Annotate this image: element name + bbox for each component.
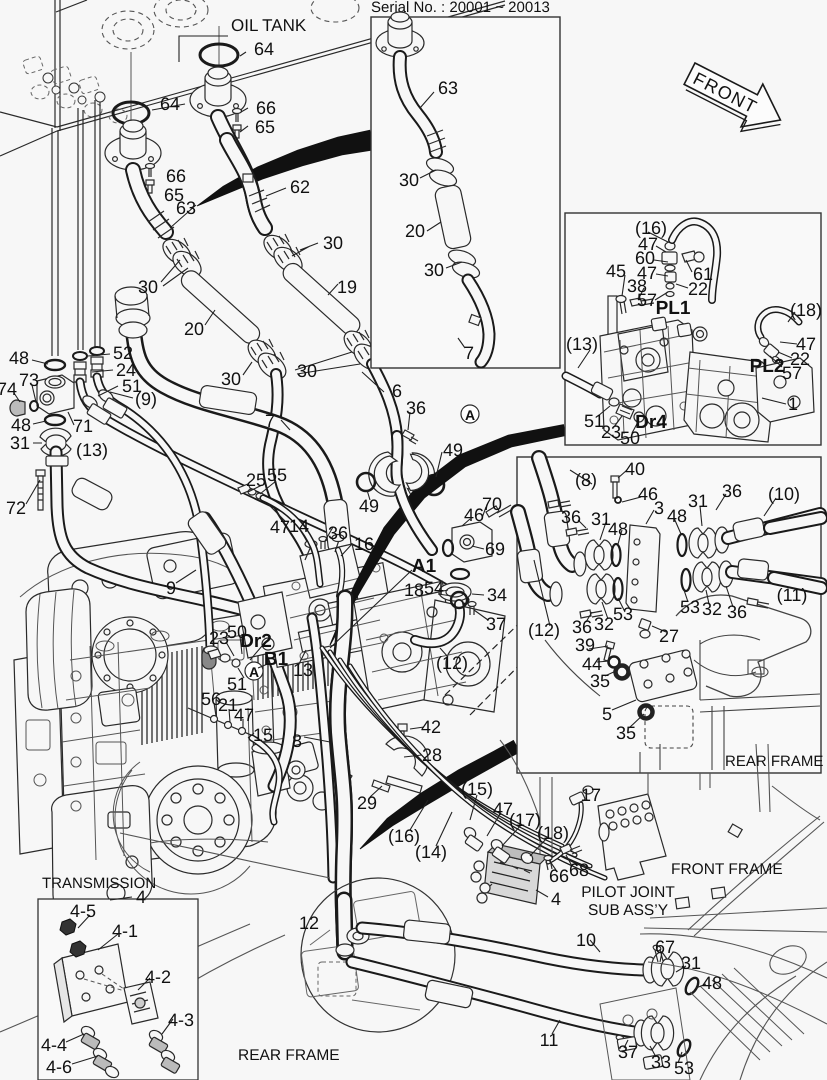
svg-text:42: 42 bbox=[421, 717, 441, 737]
svg-text:A: A bbox=[465, 407, 475, 423]
svg-text:6: 6 bbox=[392, 381, 402, 401]
svg-text:30: 30 bbox=[138, 277, 158, 297]
svg-text:57: 57 bbox=[637, 290, 657, 310]
svg-text:57: 57 bbox=[782, 363, 802, 383]
svg-text:66: 66 bbox=[166, 166, 186, 186]
svg-text:30: 30 bbox=[399, 170, 419, 190]
svg-text:OIL TANK: OIL TANK bbox=[231, 16, 307, 35]
svg-text:68: 68 bbox=[569, 860, 589, 880]
svg-text:4-1: 4-1 bbox=[112, 921, 138, 941]
svg-text:32: 32 bbox=[594, 614, 614, 634]
svg-text:48: 48 bbox=[9, 348, 29, 368]
svg-text:4-3: 4-3 bbox=[168, 1010, 194, 1030]
svg-text:48: 48 bbox=[667, 506, 687, 526]
svg-text:35: 35 bbox=[590, 671, 610, 691]
svg-text:53: 53 bbox=[613, 604, 633, 624]
svg-text:64: 64 bbox=[254, 39, 274, 59]
svg-text:53: 53 bbox=[674, 1058, 694, 1078]
svg-text:63: 63 bbox=[438, 78, 458, 98]
svg-text:14: 14 bbox=[289, 516, 309, 536]
svg-text:(18): (18) bbox=[790, 300, 822, 320]
svg-text:A1: A1 bbox=[412, 556, 437, 577]
svg-text:3: 3 bbox=[654, 498, 664, 518]
svg-text:18: 18 bbox=[404, 580, 424, 600]
svg-text:22: 22 bbox=[688, 279, 708, 299]
svg-text:67: 67 bbox=[655, 937, 675, 957]
svg-text:30: 30 bbox=[297, 361, 317, 381]
svg-text:70: 70 bbox=[482, 494, 502, 514]
svg-text:29: 29 bbox=[357, 793, 377, 813]
svg-text:(14): (14) bbox=[415, 842, 447, 862]
svg-text:27: 27 bbox=[659, 626, 679, 646]
svg-text:PILOT JOINT: PILOT JOINT bbox=[581, 884, 675, 901]
svg-text:(9): (9) bbox=[135, 389, 157, 409]
svg-text:(8): (8) bbox=[575, 470, 597, 490]
svg-text:30: 30 bbox=[221, 369, 241, 389]
svg-text:48: 48 bbox=[11, 415, 31, 435]
svg-text:37: 37 bbox=[618, 1042, 638, 1062]
svg-text:66: 66 bbox=[256, 98, 276, 118]
svg-text:55: 55 bbox=[267, 465, 287, 485]
svg-text:72: 72 bbox=[6, 498, 26, 518]
svg-text:33: 33 bbox=[651, 1052, 671, 1072]
svg-text:36: 36 bbox=[328, 523, 348, 543]
svg-text:49: 49 bbox=[443, 440, 463, 460]
svg-text:48: 48 bbox=[608, 519, 628, 539]
svg-text:4-4: 4-4 bbox=[41, 1035, 67, 1055]
svg-text:31: 31 bbox=[688, 491, 708, 511]
svg-text:FRONT FRAME: FRONT FRAME bbox=[671, 861, 783, 878]
svg-text:30: 30 bbox=[323, 233, 343, 253]
svg-text:11: 11 bbox=[540, 1030, 559, 1050]
svg-text:23: 23 bbox=[601, 422, 621, 442]
svg-text:(10): (10) bbox=[768, 484, 800, 504]
svg-text:47: 47 bbox=[234, 705, 254, 725]
svg-text:30: 30 bbox=[424, 260, 444, 280]
svg-text:39: 39 bbox=[575, 635, 595, 655]
svg-text:62: 62 bbox=[290, 177, 310, 197]
svg-text:64: 64 bbox=[160, 94, 180, 114]
svg-text:71: 71 bbox=[73, 416, 93, 436]
svg-text:47: 47 bbox=[270, 517, 290, 537]
svg-text:69: 69 bbox=[485, 539, 505, 559]
svg-text:65: 65 bbox=[255, 117, 275, 137]
svg-text:31: 31 bbox=[10, 433, 30, 453]
svg-text:37: 37 bbox=[486, 614, 506, 634]
svg-text:20: 20 bbox=[184, 319, 204, 339]
svg-text:REAR FRAME: REAR FRAME bbox=[725, 753, 823, 770]
svg-text:48: 48 bbox=[702, 973, 722, 993]
svg-text:63: 63 bbox=[176, 198, 196, 218]
svg-text:36: 36 bbox=[722, 481, 742, 501]
svg-text:4-5: 4-5 bbox=[70, 901, 96, 921]
svg-text:51: 51 bbox=[227, 674, 247, 694]
svg-text:17: 17 bbox=[581, 785, 601, 805]
svg-text:40: 40 bbox=[625, 459, 645, 479]
svg-text:36: 36 bbox=[727, 602, 747, 622]
svg-text:(13): (13) bbox=[76, 440, 108, 460]
svg-text:8: 8 bbox=[292, 731, 302, 751]
svg-text:13: 13 bbox=[293, 660, 313, 680]
svg-text:4: 4 bbox=[551, 889, 561, 909]
svg-text:34: 34 bbox=[487, 585, 507, 605]
svg-text:36: 36 bbox=[406, 398, 426, 418]
svg-text:4-6: 4-6 bbox=[46, 1057, 72, 1077]
svg-text:25: 25 bbox=[246, 470, 266, 490]
svg-text:(13): (13) bbox=[566, 334, 598, 354]
svg-text:4: 4 bbox=[136, 887, 146, 907]
svg-text:12: 12 bbox=[299, 913, 319, 933]
svg-text:19: 19 bbox=[337, 277, 357, 297]
svg-text:66: 66 bbox=[549, 866, 569, 886]
svg-text:SUB ASS’Y: SUB ASS’Y bbox=[588, 902, 668, 919]
svg-text:REAR FRAME: REAR FRAME bbox=[238, 1047, 340, 1064]
svg-text:73: 73 bbox=[19, 370, 39, 390]
svg-text:20: 20 bbox=[405, 221, 425, 241]
svg-text:54: 54 bbox=[424, 578, 444, 598]
svg-text:53: 53 bbox=[680, 597, 700, 617]
svg-text:16: 16 bbox=[354, 534, 374, 554]
svg-text:5: 5 bbox=[602, 704, 612, 724]
svg-text:7: 7 bbox=[464, 343, 474, 363]
svg-text:A: A bbox=[249, 664, 259, 680]
svg-text:49: 49 bbox=[359, 496, 379, 516]
svg-text:Dr4: Dr4 bbox=[635, 412, 667, 433]
svg-text:PL1: PL1 bbox=[656, 298, 691, 319]
svg-text:7: 7 bbox=[265, 411, 275, 431]
svg-text:36: 36 bbox=[572, 617, 592, 637]
svg-text:36: 36 bbox=[561, 507, 581, 527]
svg-text:45: 45 bbox=[606, 261, 626, 281]
svg-text:31: 31 bbox=[681, 953, 701, 973]
svg-text:46: 46 bbox=[464, 505, 484, 525]
svg-text:PL2: PL2 bbox=[750, 356, 785, 377]
svg-text:9: 9 bbox=[166, 578, 176, 598]
svg-text:10: 10 bbox=[576, 930, 596, 950]
svg-text:(15): (15) bbox=[461, 779, 493, 799]
svg-text:15: 15 bbox=[253, 725, 273, 745]
svg-text:1: 1 bbox=[788, 394, 798, 414]
svg-text:74: 74 bbox=[0, 379, 17, 399]
svg-text:B1: B1 bbox=[264, 649, 289, 670]
svg-text:32: 32 bbox=[702, 599, 722, 619]
svg-text:(12): (12) bbox=[436, 653, 468, 673]
svg-text:28: 28 bbox=[422, 745, 442, 765]
svg-text:4-2: 4-2 bbox=[145, 967, 171, 987]
svg-text:(11): (11) bbox=[777, 585, 808, 605]
svg-text:(18): (18) bbox=[537, 823, 569, 843]
svg-text:35: 35 bbox=[616, 723, 636, 743]
svg-text:(12): (12) bbox=[528, 620, 560, 640]
